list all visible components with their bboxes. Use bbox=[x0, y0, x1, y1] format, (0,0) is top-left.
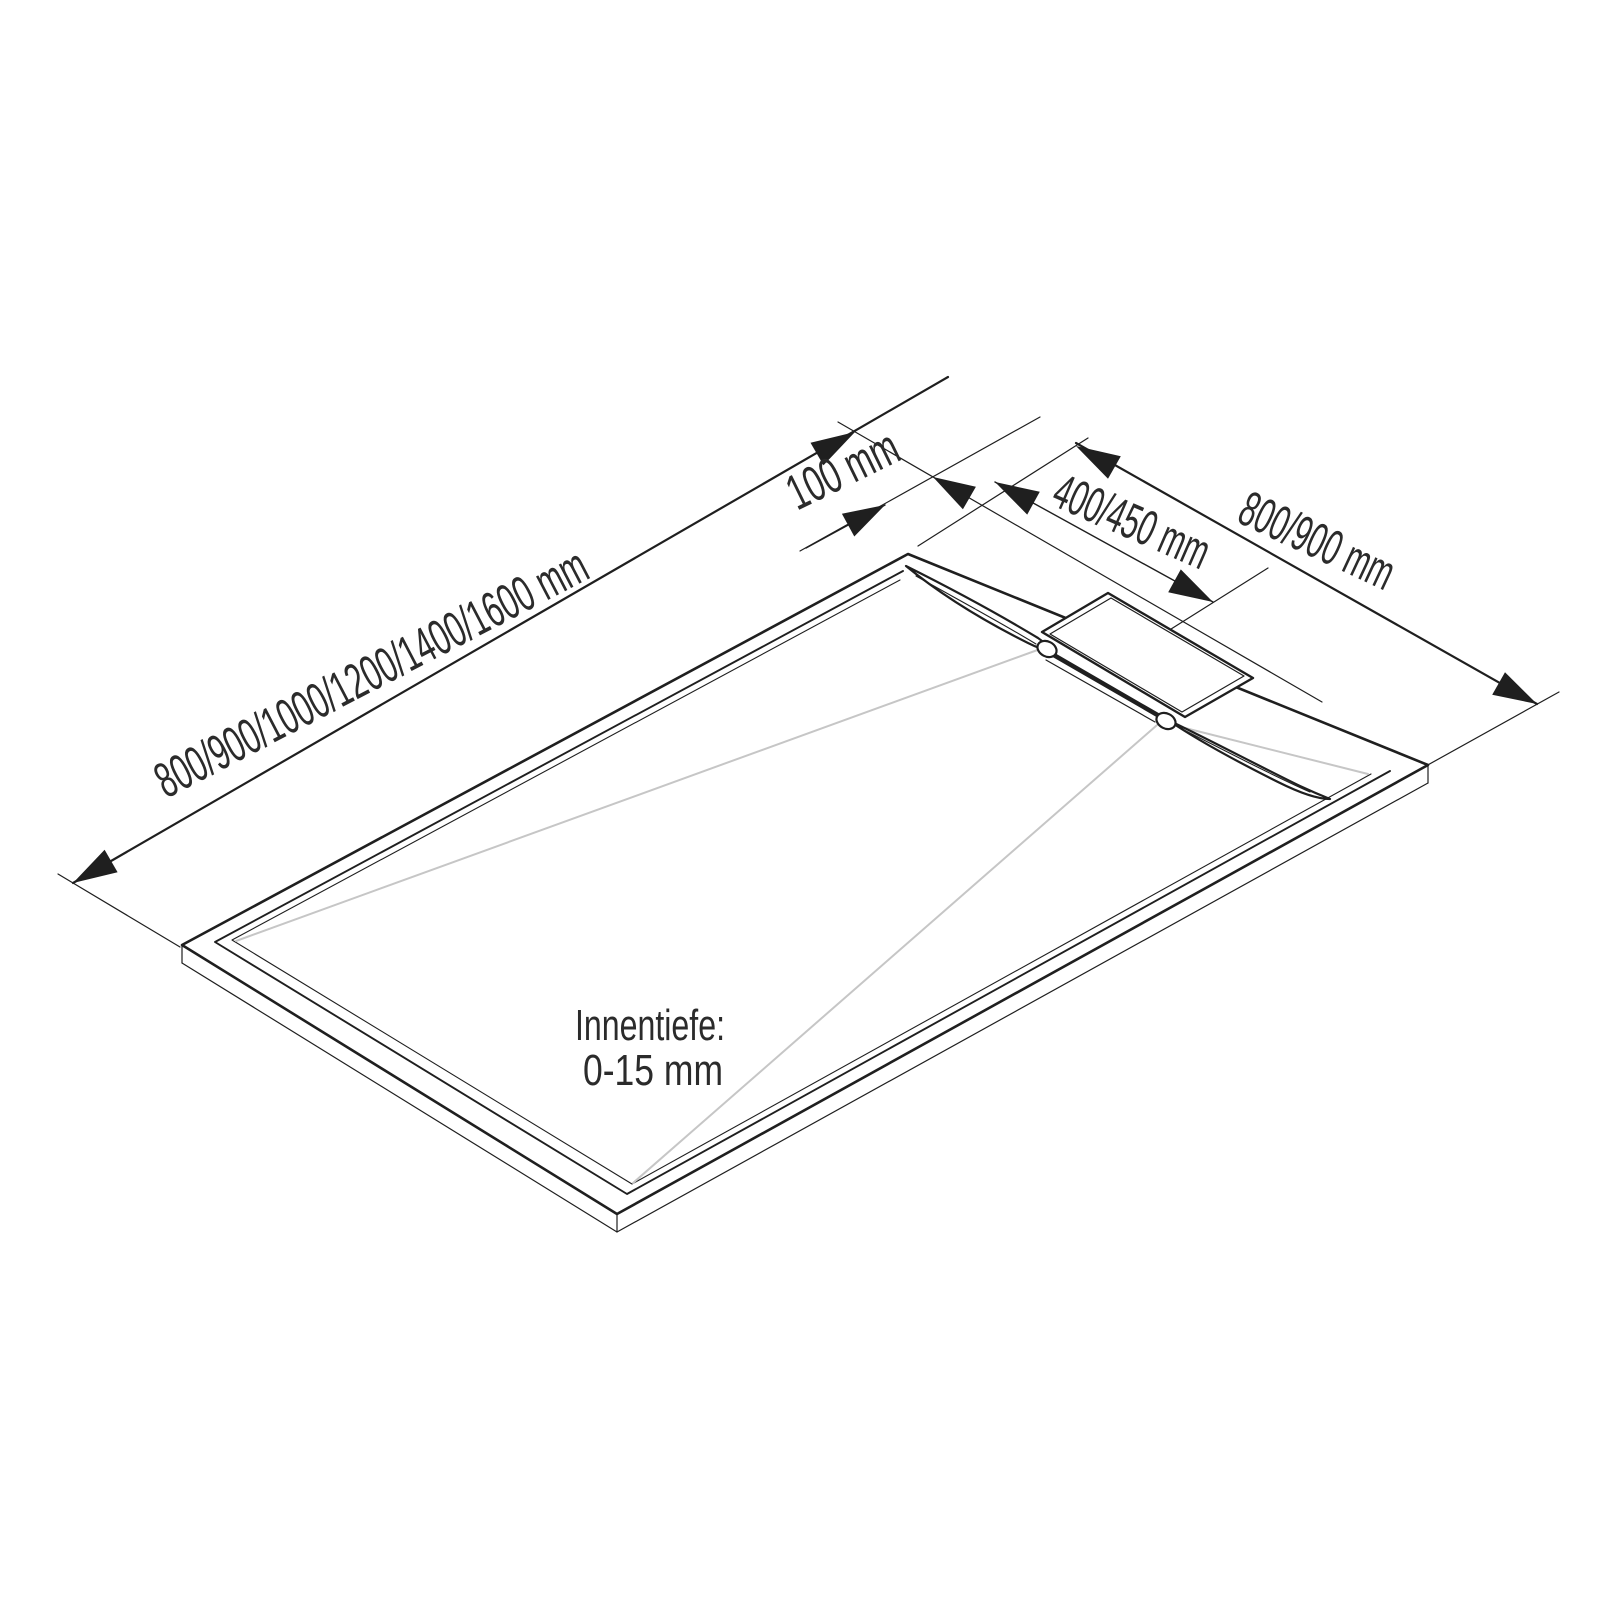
width-dim-arrow-right-icon bbox=[1492, 672, 1537, 704]
drain-channel-left-wing-inner-line bbox=[916, 576, 1036, 644]
offset-dim-arrow-right-icon bbox=[933, 477, 976, 509]
dimension-labels: 800/900/1000/1200/1400/1600 mm 100 mm 40… bbox=[145, 419, 1403, 1095]
inner-depth-label-title: Innentiefe: bbox=[575, 1001, 725, 1050]
drain-dim-arrow-left-icon bbox=[995, 482, 1040, 515]
extension-line-east-corner bbox=[1390, 692, 1559, 786]
drain-dimension-label: 400/450 mm bbox=[1045, 463, 1219, 580]
drawing-canvas: 800/900/1000/1200/1400/1600 mm 100 mm 40… bbox=[0, 0, 1600, 1600]
tray-bottom-lip bbox=[182, 783, 1428, 1232]
inner-depth-label-value: 0-15 mm bbox=[583, 1046, 723, 1095]
drain-channel-left-wing bbox=[906, 566, 1050, 651]
extension-line-west-corner bbox=[58, 874, 180, 947]
offset-dim-leader-arrow-icon bbox=[842, 505, 885, 537]
shower-tray-diagram: 800/900/1000/1200/1400/1600 mm 100 mm 40… bbox=[0, 0, 1600, 1600]
floor-slope-line-bottom bbox=[633, 719, 1164, 1183]
length-dimension-label: 800/900/1000/1200/1400/1600 mm bbox=[145, 537, 597, 808]
offset-dimension-label: 100 mm bbox=[777, 419, 908, 521]
length-dim-arrow-left-icon bbox=[73, 850, 118, 883]
drain-assembly bbox=[906, 566, 1330, 799]
drain-channel-right-wing bbox=[1168, 720, 1330, 799]
drain-cover-plate bbox=[1042, 593, 1253, 717]
floor-slope-lines bbox=[236, 648, 1368, 1183]
floor-slope-line-right bbox=[1185, 728, 1368, 774]
width-dimension-label: 800/900 mm bbox=[1231, 480, 1404, 600]
offset-dimension-line-thin bbox=[838, 422, 1322, 702]
tray-lip-corner-edges bbox=[182, 765, 1428, 1232]
dimension-lines bbox=[73, 377, 1537, 883]
